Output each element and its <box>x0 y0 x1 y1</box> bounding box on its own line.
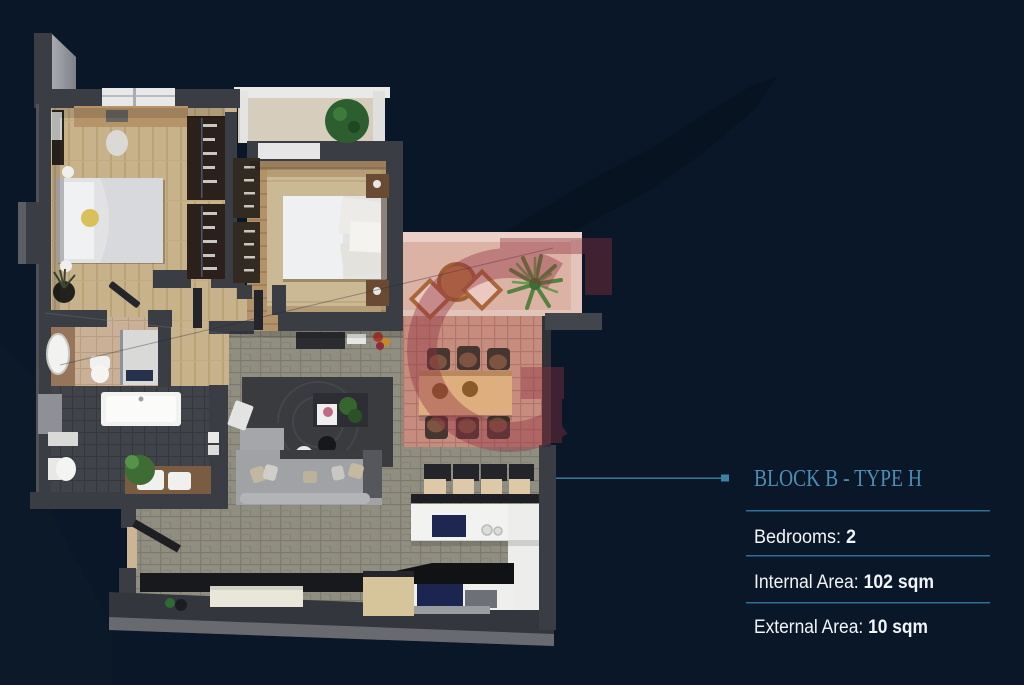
svg-text:Internal Area: 102 sqm: Internal Area: 102 sqm <box>754 572 934 593</box>
svg-text:External Area: 10 sqm: External Area: 10 sqm <box>754 617 928 638</box>
svg-text:BLOCK B - TYPE H: BLOCK B - TYPE H <box>754 466 922 492</box>
svg-text:Bedrooms: 2: Bedrooms: 2 <box>754 527 856 548</box>
